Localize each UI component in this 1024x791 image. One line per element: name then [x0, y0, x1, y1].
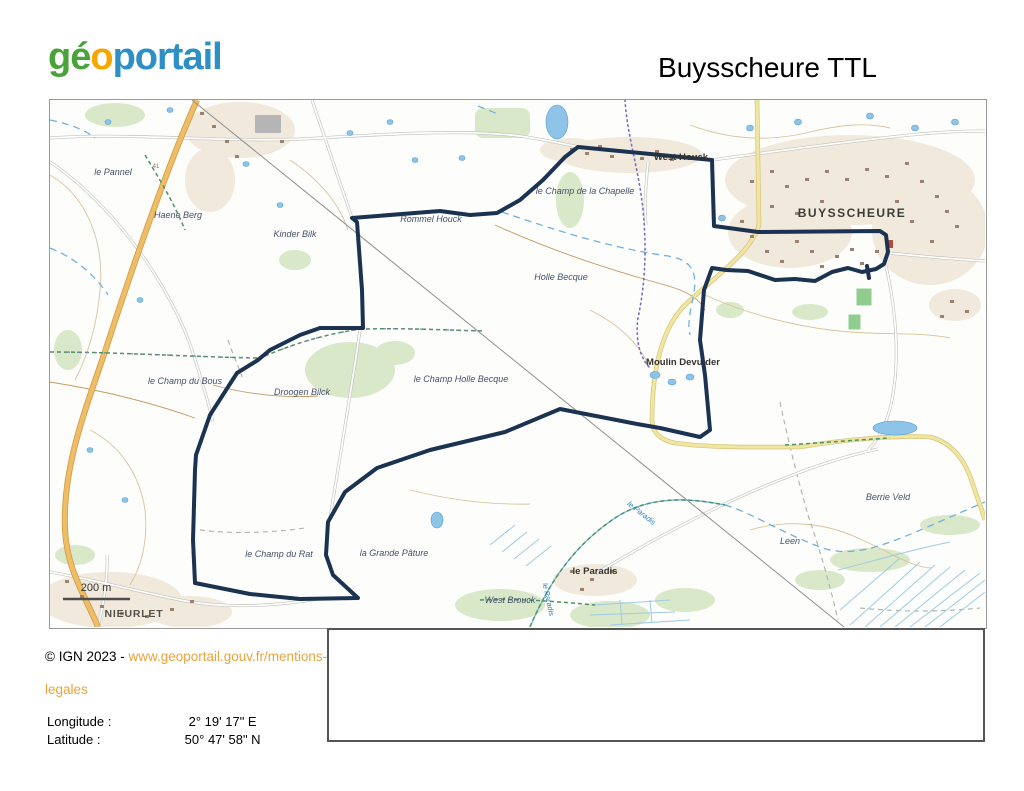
longitude-row: Longitude : 2° 19' 17" E [47, 713, 283, 731]
map-label: Kinder Bilk [273, 229, 317, 239]
gps-track-spur [867, 266, 869, 278]
mentions-legales-link-wrap[interactable]: legales [45, 682, 88, 697]
map-label: le Paradis [626, 499, 658, 527]
map-label: Moulin Devulder [646, 357, 720, 368]
logo-part-green: gé [48, 36, 90, 78]
map-label: NIEURLET [105, 608, 164, 620]
map-frame: le PannelHaene BergKinder BilkRommel Hou… [49, 99, 987, 629]
print-page: géoportail Buysscheure TTL [0, 0, 1024, 791]
latitude-label: Latitude : [47, 731, 159, 749]
builtup-areas [50, 102, 985, 627]
map-label: Holle Becque [534, 272, 588, 282]
latitude-row: Latitude : 50° 47' 58" N [47, 731, 283, 749]
scale-label: 200 m [81, 582, 112, 594]
geoportail-logo: géoportail [48, 36, 222, 79]
attribution: © IGN 2023 - www.geoportail.gouv.fr/ment… [45, 640, 327, 706]
map-label: le Champ Holle Becque [414, 374, 509, 384]
map-label: Droogen Bilck [274, 387, 331, 397]
map-label: 41 [153, 164, 160, 170]
map-label: le Pannel [94, 167, 133, 177]
map-label: Haene Berg [154, 210, 202, 220]
map-label: West Houck [654, 152, 709, 163]
map-label: la Grande Pâture [360, 548, 429, 558]
mentions-legales-link[interactable]: www.geoportail.gouv.fr/mentions- [128, 649, 327, 664]
longitude-value: 2° 19' 17" E [163, 713, 283, 731]
map-label: BUYSSCHEURE [798, 206, 907, 220]
longitude-label: Longitude : [47, 713, 159, 731]
latitude-value: 50° 47' 58" N [163, 731, 283, 749]
coordinates-block: Longitude : 2° 19' 17" E Latitude : 50° … [47, 713, 283, 749]
map-label: le Champ du Rat [245, 549, 313, 559]
page-title: Buysscheure TTL [550, 52, 985, 84]
notes-box [327, 628, 985, 742]
map-label: le Paradis [573, 566, 618, 577]
map-label: Berrie Veld [866, 492, 911, 502]
logo-part-blue: portail [113, 36, 222, 78]
map-label: Leen [780, 536, 800, 546]
copyright-text: © IGN 2023 - [45, 649, 128, 664]
logo-part-orange: o [90, 36, 112, 78]
map-label: West Brouck [485, 595, 536, 605]
map-label: Rommel Houck [400, 214, 462, 224]
map-canvas: le PannelHaene BergKinder BilkRommel Hou… [50, 100, 985, 627]
map-label: le Champ de la Chapelle [536, 186, 635, 196]
map-label: le Champ du Bous [148, 376, 223, 386]
